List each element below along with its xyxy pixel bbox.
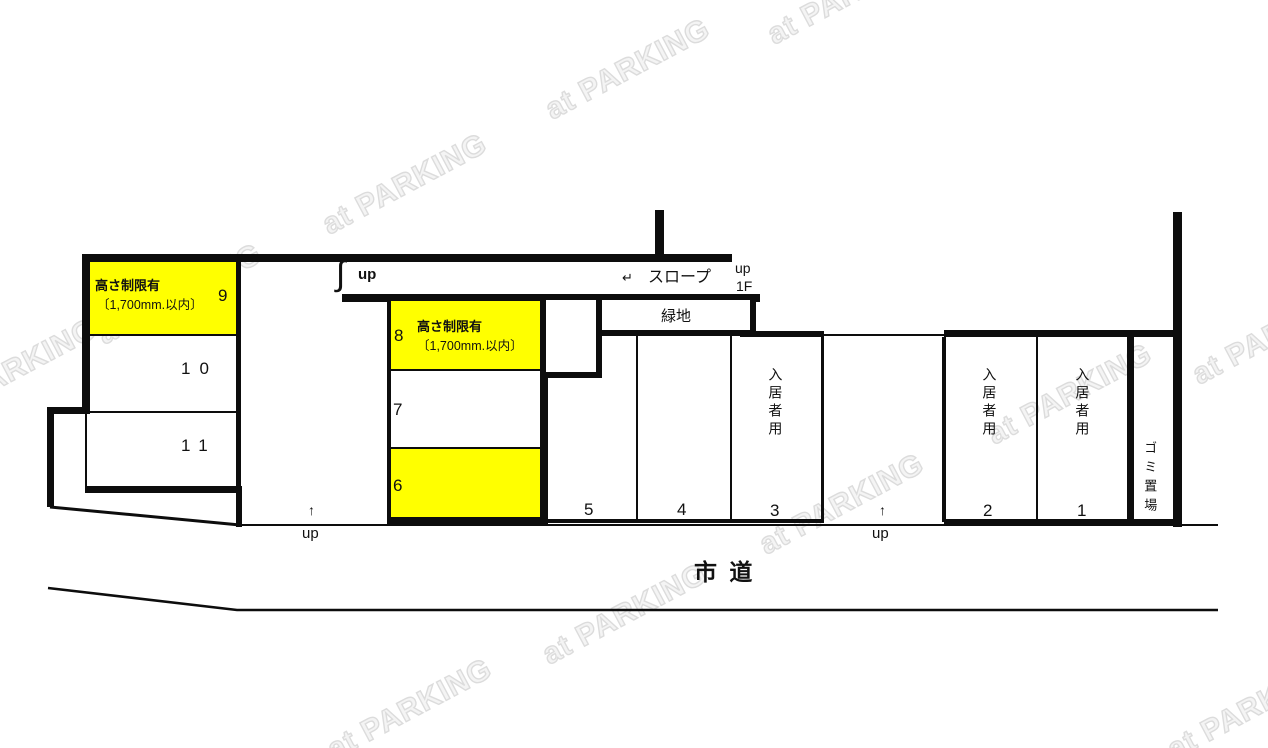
green-area-box: 緑地 [596, 294, 756, 336]
watermark: at PARKING [754, 447, 930, 562]
watermark: at PARKING [762, 0, 938, 52]
divider-corridor-2 [942, 337, 946, 522]
row-top-wall-space3 [740, 331, 824, 337]
space-9-restriction-line1: 高さ制限有 [95, 279, 160, 293]
city-road-label: 市 道 [694, 560, 755, 585]
wall-right-tall [1173, 212, 1182, 527]
watermark: at PARKING [1187, 277, 1268, 392]
watermark: at PARKING [1162, 652, 1268, 748]
blockA-left-wall [82, 254, 90, 414]
row-top-line-corridor [824, 334, 944, 336]
space-2-resident-label: 入居者用 [981, 367, 996, 439]
blockA-right-lower [236, 486, 242, 527]
divider-8-7 [391, 369, 540, 371]
space-8-restriction-line1: 高さ制限有 [417, 320, 482, 334]
space-1-number: 1 [1077, 502, 1086, 521]
space-6-number: 6 [393, 477, 402, 496]
space-10-number: 10 [181, 360, 218, 379]
slope-floor-label: 1F [736, 279, 752, 294]
space-5-number: 5 [584, 501, 593, 520]
road-top-line [240, 524, 1218, 526]
utility-notch-box [540, 294, 602, 378]
slope-direction-arrow-icon: ↵ [622, 271, 633, 285]
divider-4-3 [730, 336, 732, 522]
road-bottom-edge [48, 588, 1218, 610]
space-8-restriction-line2: 〔1,700mm.以内〕 [417, 340, 523, 354]
space-2-number: 2 [983, 502, 992, 521]
wall-top-stub [655, 210, 664, 262]
driveway1-up-arrow-icon: ↑ [308, 503, 315, 518]
slope-up-label: up [735, 261, 751, 276]
watermark: at PARKING [322, 652, 498, 748]
divider-2-1 [1036, 337, 1038, 522]
divider-1-garbage [1127, 337, 1134, 522]
driveway2-up-arrow-icon: ↑ [879, 503, 886, 518]
stairs-icon: ∫ [336, 254, 345, 295]
divider-10-11 [85, 411, 236, 413]
space-8-number: 8 [394, 327, 403, 346]
space-11-number: 11 [181, 437, 217, 456]
divider-3-corridor [821, 337, 824, 522]
space-6-area [391, 449, 540, 519]
space-3-resident-label: 入居者用 [767, 367, 782, 439]
divider-9-10 [90, 334, 236, 336]
space-9-restriction-line2: 〔1,700mm.以内〕 [97, 299, 203, 313]
parking-lot-map: at PARKING at PARKING at PARKING at PARK… [0, 0, 1268, 748]
blockA-bottom-wall [85, 486, 242, 493]
watermark: at PARKING [317, 127, 493, 242]
road-top-diagonal [50, 507, 240, 525]
space-1-resident-label: 入居者用 [1074, 367, 1089, 439]
blockA-jog-left [47, 407, 54, 507]
blockA-right-wall [236, 258, 241, 488]
green-area-label: 緑地 [661, 305, 691, 326]
watermark: at PARKING [540, 12, 716, 127]
slope-label: スロープ [648, 269, 711, 287]
space-7-number: 7 [393, 401, 402, 420]
space-9-number: 9 [218, 287, 227, 306]
divider-5-4 [636, 336, 638, 522]
space-4-number: 4 [677, 501, 686, 520]
space-8-area [391, 301, 540, 369]
driveway2-up-label: up [872, 526, 889, 543]
driveway1-up-label: up [302, 526, 319, 543]
watermark: at PARKING [537, 557, 713, 672]
wall-top-main [82, 254, 732, 262]
space-11-left-border [85, 411, 87, 488]
space-3-number: 3 [770, 502, 779, 521]
stairs-up-label: up [358, 267, 376, 284]
row-top-wall-spaces21 [944, 330, 1174, 337]
garbage-area-label: ゴミ置場 [1142, 441, 1156, 517]
